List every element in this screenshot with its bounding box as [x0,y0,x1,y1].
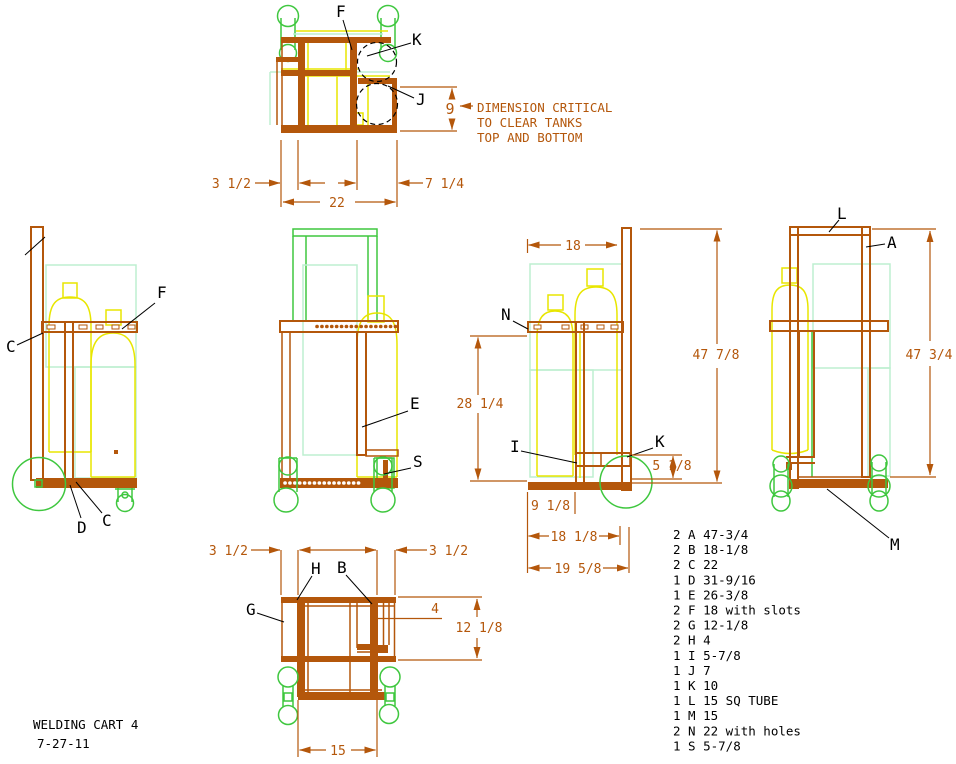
dim-bottom-width: 15 [330,744,346,759]
dim-top-right: 7 1/4 [425,177,464,192]
label-k-right: K [655,432,665,451]
label-k: K [412,30,422,49]
label-n: N [501,305,511,324]
label-c-bottom: C [102,511,112,530]
label-s: S [413,452,423,471]
note-line3: TOP AND BOTTOM [477,130,582,145]
label-i: I [510,437,520,456]
parts-list-item: 2 F 18 with slots [673,603,801,618]
label-d: D [77,518,87,537]
parts-list-item: 1 D 31-9/16 [673,572,756,587]
dim-top-width: 22 [329,196,345,211]
label-f: F [336,2,346,21]
label-a: A [887,233,897,252]
dim-right-top-width: 18 [565,239,581,254]
dim-top-clearance: 9 [445,100,454,118]
dim-right-base2: 18 1/8 [551,530,598,545]
dim-bottom-depth: 12 1/8 [456,621,503,636]
dim-right-mid-height: 28 1/4 [457,397,504,412]
label-c-top: C [6,337,16,356]
note-line1: DIMENSION CRITICAL [477,100,612,115]
parts-list-item: 1 S 5-7/8 [673,738,741,753]
label-f-left: F [157,283,167,302]
parts-list-item: 1 K 10 [673,678,718,693]
dim-top-left: 3 1/2 [212,177,251,192]
label-b: B [337,558,347,577]
dim-right-base1: 9 1/8 [531,499,570,514]
parts-list-item: 1 I 5-7/8 [673,648,741,663]
dim-right-small: 5 1/8 [652,459,691,474]
note-line2: TO CLEAR TANKS [477,115,582,130]
parts-list-item: 2 N 22 with holes [673,723,801,738]
drawing-date: 7-27-11 [37,736,90,751]
parts-list-item: 2 A 47-3/4 [673,527,748,542]
parts-list-item: 1 L 15 SQ TUBE [673,693,778,708]
parts-list-item: 2 H 4 [673,633,711,648]
parts-list-item: 2 B 18-1/8 [673,542,748,557]
welding-cart-drawing: F K J 3 1/2 7 1/4 22 9 DIMENSION CRITICA… [0,0,956,764]
label-j: J [416,90,426,109]
parts-list-item: 2 C 22 [673,557,718,572]
label-l: L [837,204,847,223]
dim-bottom-right: 3 1/2 [429,544,468,559]
dim-bottom-left: 3 1/2 [209,544,248,559]
label-h: H [311,559,321,578]
parts-list-item: 1 J 7 [673,663,711,678]
dim-right-base3: 19 5/8 [555,562,602,577]
label-e: E [410,394,420,413]
dim-bottom-pocket: 4 [431,602,439,617]
dim-far-right-height: 47 3/4 [906,348,953,363]
parts-list-item: 2 G 12-1/8 [673,618,748,633]
label-g: G [246,600,256,619]
dim-right-height: 47 7/8 [693,348,740,363]
parts-list-item: 1 E 26-3/8 [673,587,748,602]
label-m: M [890,535,900,554]
drawing-title: WELDING CART 4 [33,717,138,732]
parts-list-item: 1 M 15 [673,708,718,723]
